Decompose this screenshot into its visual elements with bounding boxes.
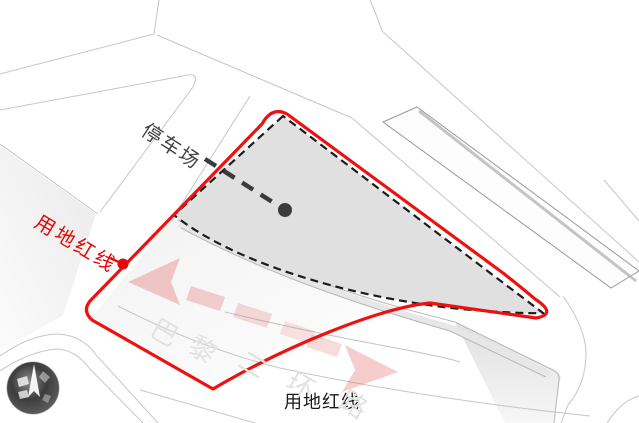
site-plan-drawing: 停车场 用地红线 用地红线 巴 黎 二 环 路 (0, 0, 639, 423)
road-name-char: 路 (334, 385, 372, 423)
road-line (607, 396, 639, 423)
road-line (140, 390, 255, 423)
road-line (157, 35, 352, 118)
parking-leader-dot (278, 203, 292, 217)
road-line (0, 0, 159, 74)
road-line (561, 296, 586, 423)
site-plan-canvas: 停车场 用地红线 用地红线 巴 黎 二 环 路 (0, 0, 639, 423)
parking-label: 停车场 (137, 119, 205, 174)
road-line (604, 180, 639, 221)
compass-icon (7, 362, 59, 414)
